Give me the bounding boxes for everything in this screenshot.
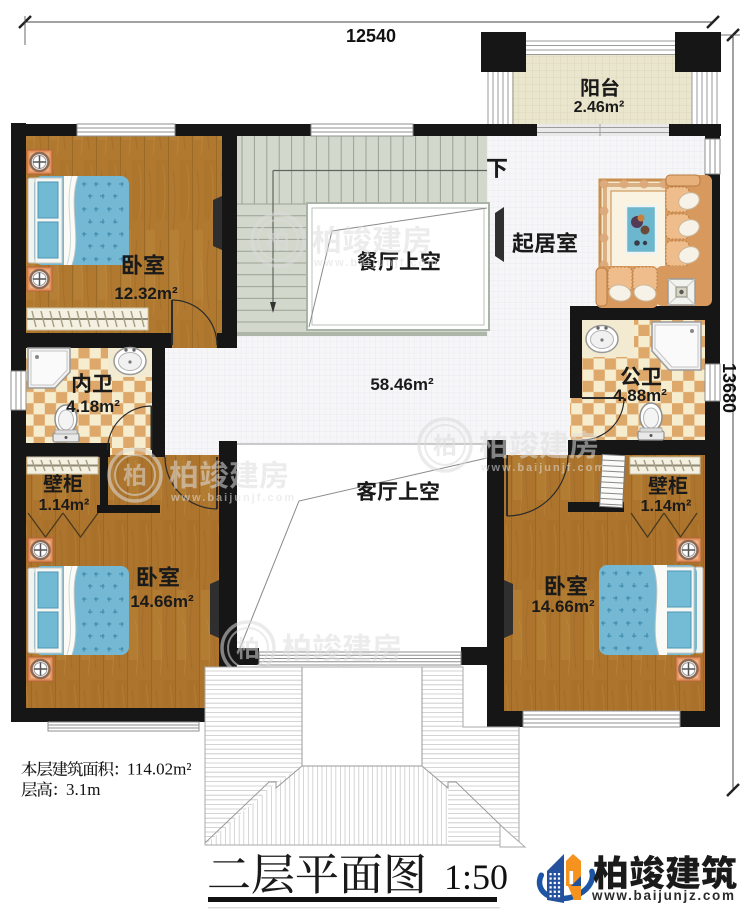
svg-text:14.66m²: 14.66m²: [531, 597, 595, 616]
svg-text:1.14m²: 1.14m²: [39, 497, 90, 514]
svg-text:www.baijunjf.com: www.baijunjf.com: [313, 257, 439, 269]
svg-text:www.baijunjf.com: www.baijunjf.com: [480, 462, 606, 474]
svg-text:58.46m²: 58.46m²: [370, 375, 434, 394]
svg-text:www.baijunjf.com: www.baijunjf.com: [170, 492, 296, 504]
svg-text:3.1m: 3.1m: [66, 780, 100, 799]
svg-text:114.02m²: 114.02m²: [127, 760, 191, 779]
svg-text:1:50: 1:50: [444, 857, 508, 897]
svg-text:2.46m²: 2.46m²: [574, 99, 625, 116]
svg-text:4.18m²: 4.18m²: [66, 397, 120, 416]
svg-text:13680: 13680: [719, 363, 739, 413]
svg-text:www.baijunjz.com: www.baijunjz.com: [591, 888, 736, 903]
svg-text:1.14m²: 1.14m²: [641, 498, 692, 515]
svg-text:12.32m²: 12.32m²: [114, 284, 178, 303]
svg-text:4.88m²: 4.88m²: [613, 386, 667, 405]
svg-text:14.66m²: 14.66m²: [130, 592, 194, 611]
svg-text:12540: 12540: [346, 26, 396, 46]
